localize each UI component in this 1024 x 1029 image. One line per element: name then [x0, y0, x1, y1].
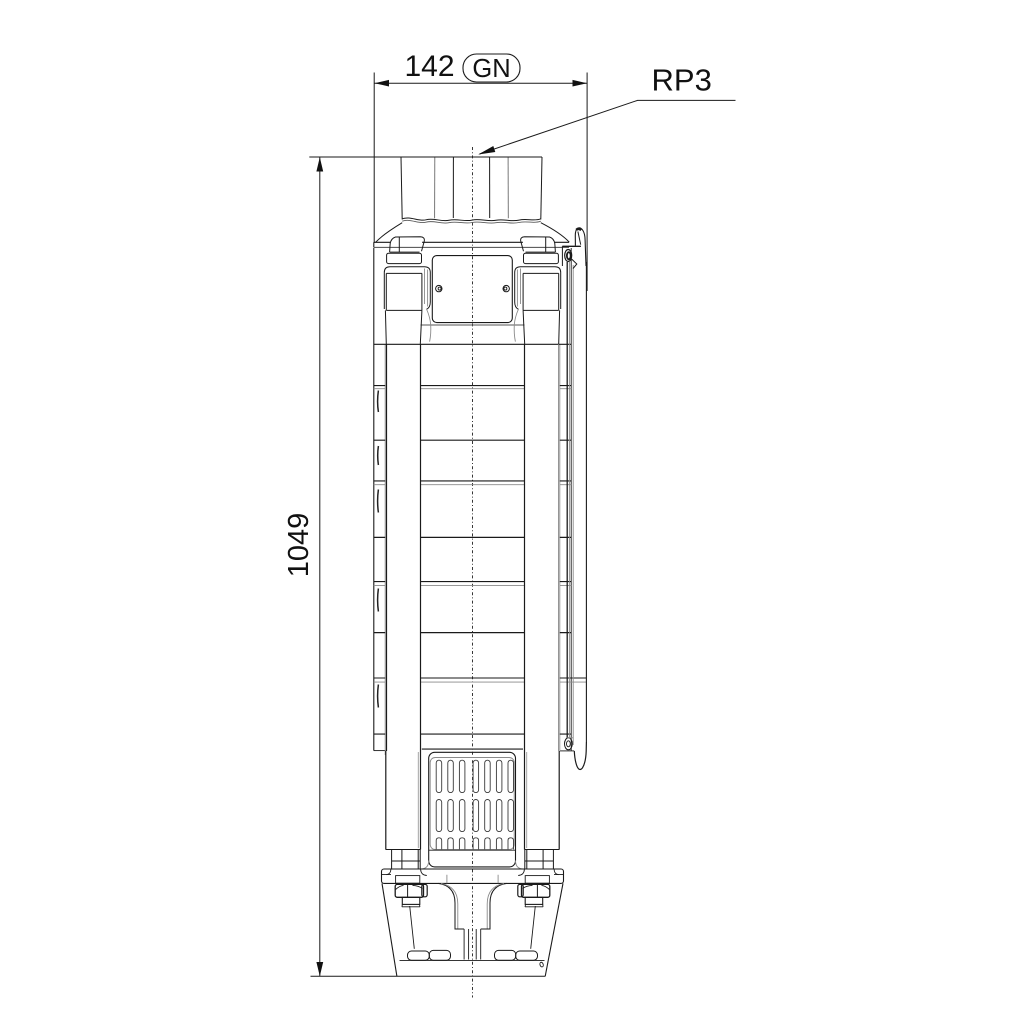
svg-text:142: 142: [405, 50, 455, 83]
svg-text:RP3: RP3: [652, 63, 712, 98]
svg-text:1049: 1049: [283, 513, 315, 578]
svg-text:GN: GN: [472, 55, 510, 83]
